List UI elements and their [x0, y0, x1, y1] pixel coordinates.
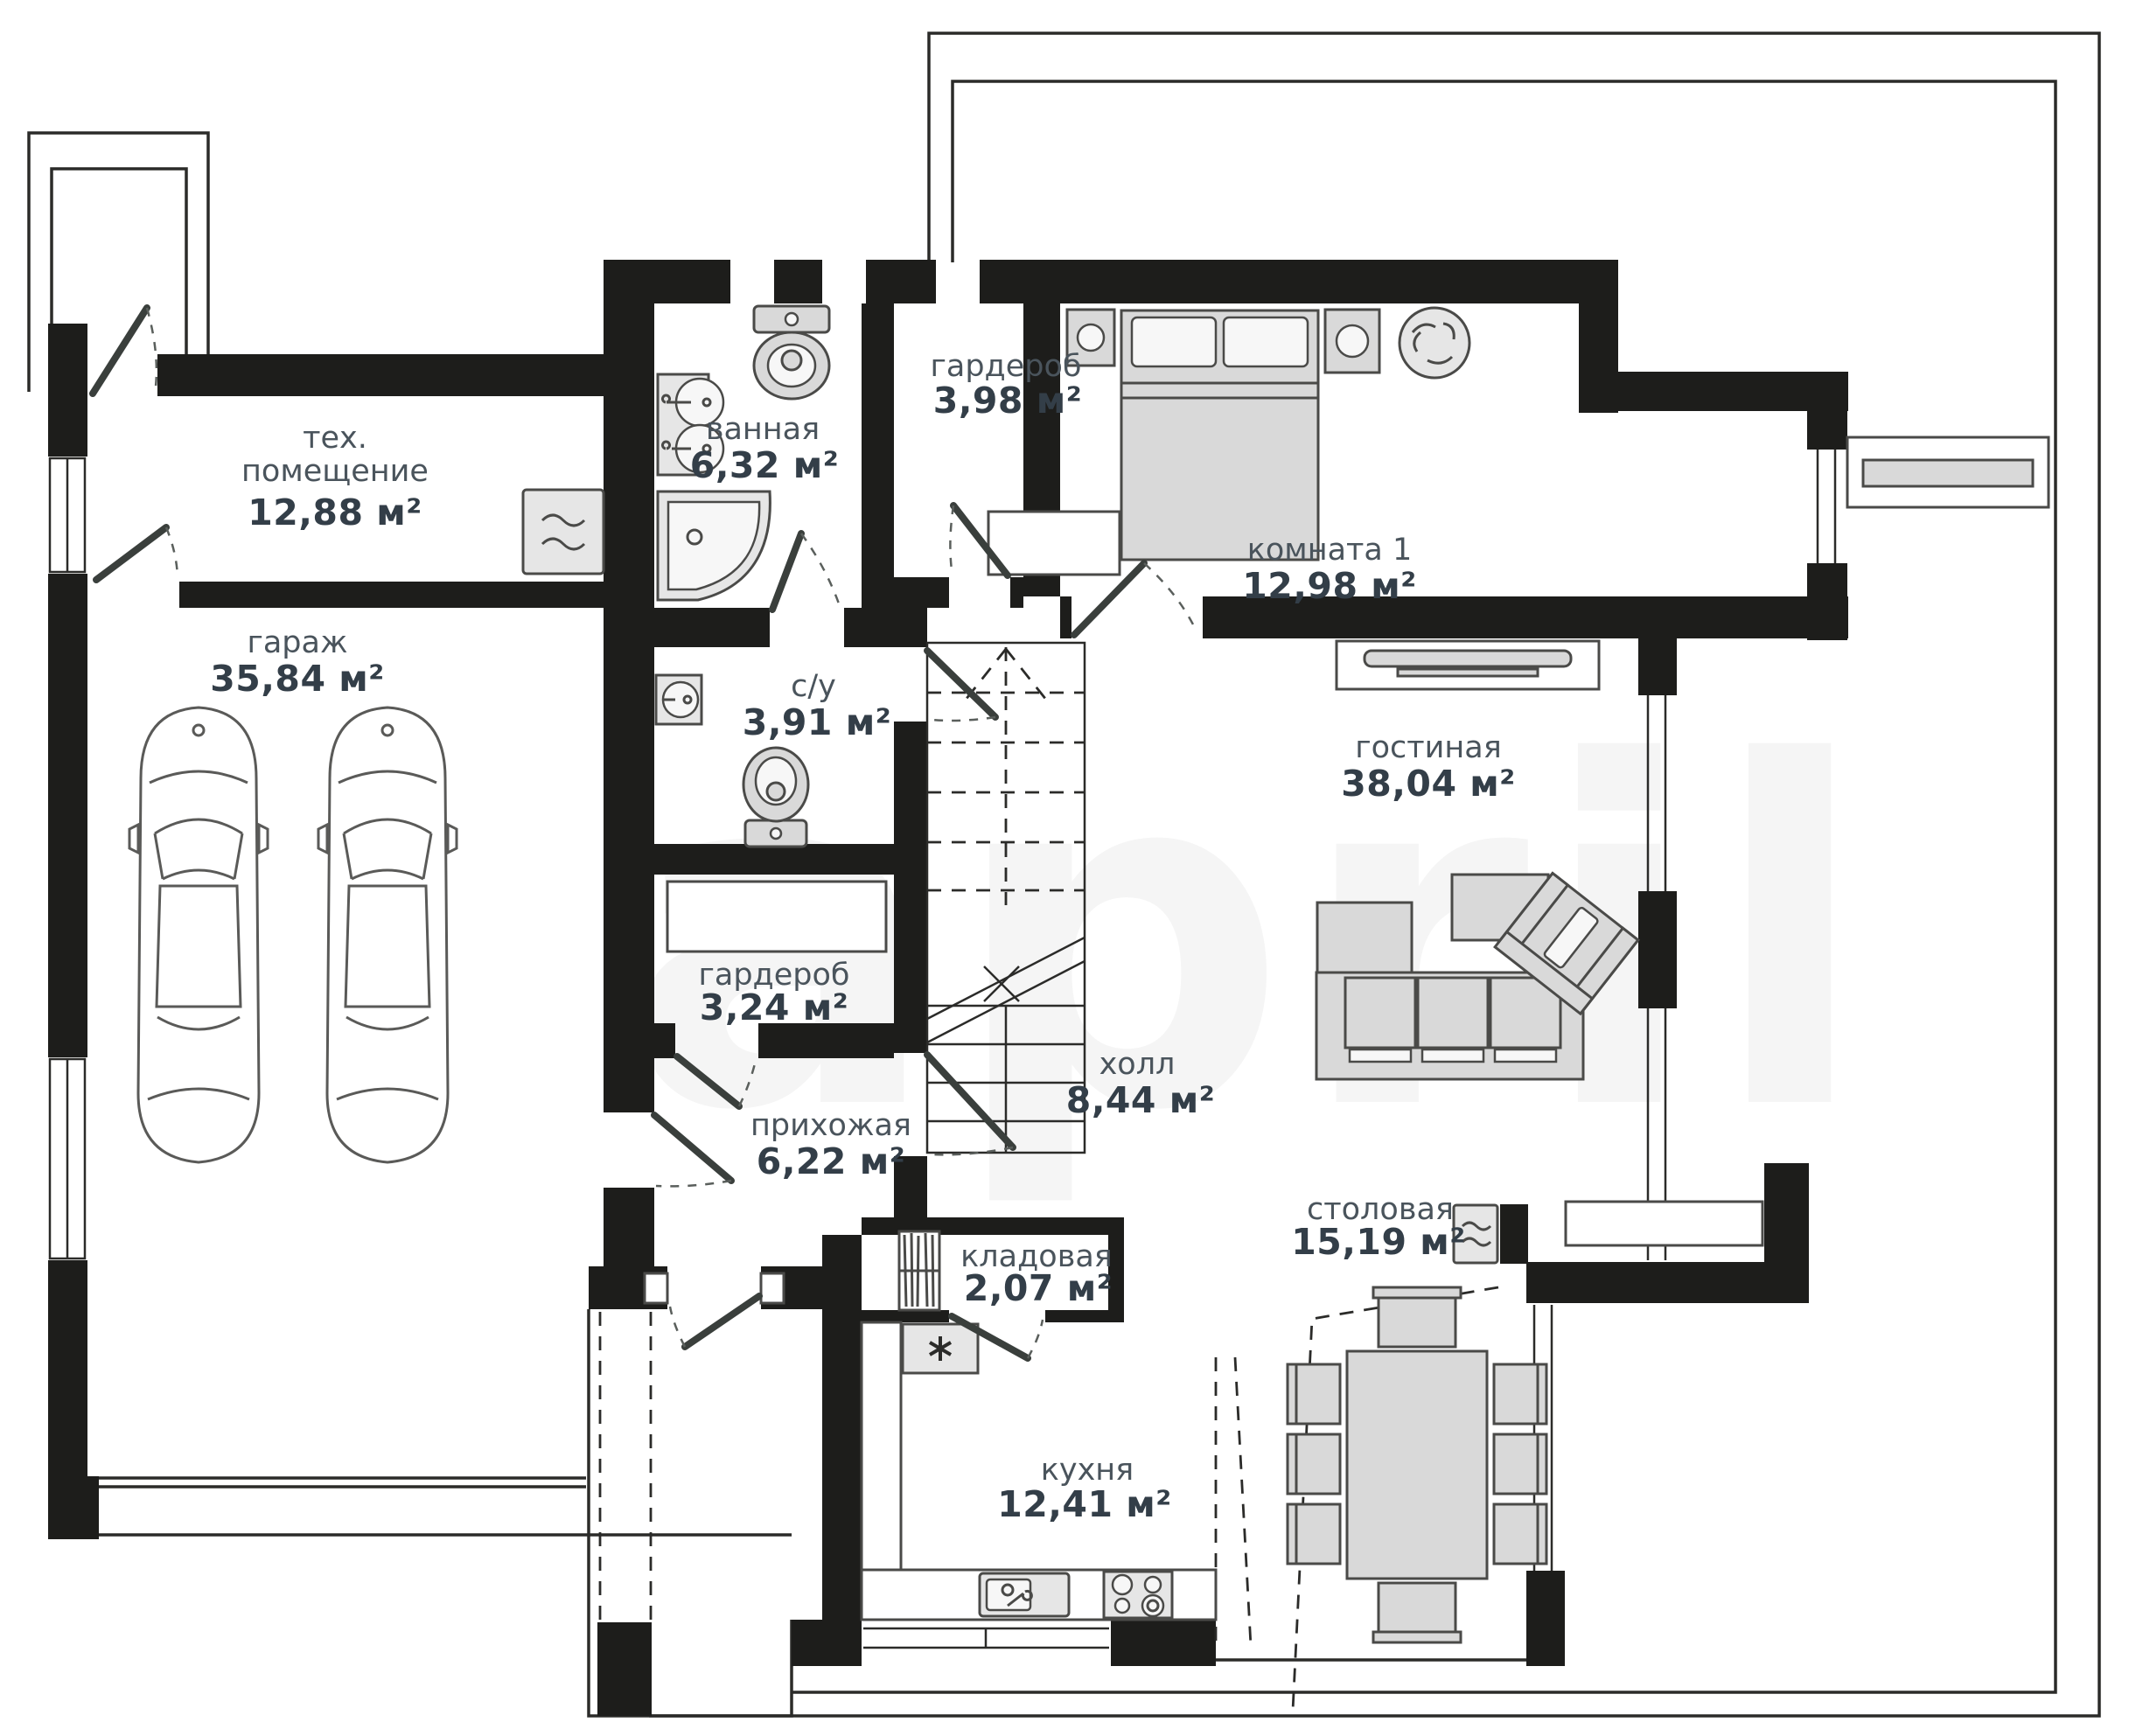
wc-toilet-icon [743, 748, 808, 847]
floor-plan: april [0, 0, 2129, 1736]
room-area-wardrobe-mid: 3,24 м² [700, 987, 848, 1028]
toilet-icon [754, 306, 829, 399]
bed-icon [1121, 310, 1318, 560]
room-label-tech: тех. [303, 421, 367, 456]
fridge-icon [903, 1324, 978, 1373]
room-label-garage: гараж [247, 625, 347, 660]
room-label-bathroom: ванная [706, 412, 820, 447]
stove-icon [1104, 1572, 1172, 1618]
room-area-kitchen: 12,41 м² [997, 1483, 1171, 1525]
room-area-hall: 8,44 м² [1066, 1079, 1215, 1121]
window-west-1 [50, 458, 85, 572]
room-label-living: гостиная [1355, 730, 1502, 765]
wc-sink-icon [656, 675, 702, 724]
room-area-bathroom: 6,32 м² [690, 444, 839, 486]
room-area-tech: 12,88 м² [248, 492, 422, 533]
room-area-wardrobe-top: 3,98 м² [933, 380, 1082, 422]
room-label-bedroom: комната 1 [1247, 533, 1413, 568]
room-area-garage: 35,84 м² [210, 658, 384, 700]
room-label-tech-2: помещение [241, 454, 429, 489]
room-label-wardrobe-top: гардероб [930, 349, 1081, 384]
room-label-wc: с/у [791, 669, 836, 704]
tv-console-icon [1337, 641, 1599, 689]
dining-table-icon [1288, 1287, 1546, 1642]
room-area-entry: 6,22 м² [757, 1140, 905, 1182]
room-label-entry: прихожая [750, 1108, 911, 1143]
window-kitchen-south [863, 1628, 1109, 1648]
room-area-wc: 3,91 м² [743, 701, 891, 743]
room-area-dining: 15,19 м² [1291, 1221, 1465, 1263]
window-west-2 [50, 1059, 85, 1258]
kitchen-sink-icon [980, 1573, 1069, 1616]
water-heater-icon [523, 490, 604, 574]
room-area-bedroom: 12,98 м² [1242, 565, 1416, 607]
terrace-bench-icon [1847, 437, 2049, 507]
room-area-pantry: 2,07 м² [964, 1267, 1113, 1309]
shower-icon [658, 492, 770, 600]
plant-icon [1400, 308, 1469, 378]
pantry-shelves-icon [899, 1231, 939, 1310]
room-area-living: 38,04 м² [1341, 763, 1515, 805]
room-label-hall: холл [1099, 1047, 1176, 1082]
room-label-kitchen: кухня [1041, 1453, 1134, 1488]
window-bedroom-east [1818, 450, 1835, 563]
